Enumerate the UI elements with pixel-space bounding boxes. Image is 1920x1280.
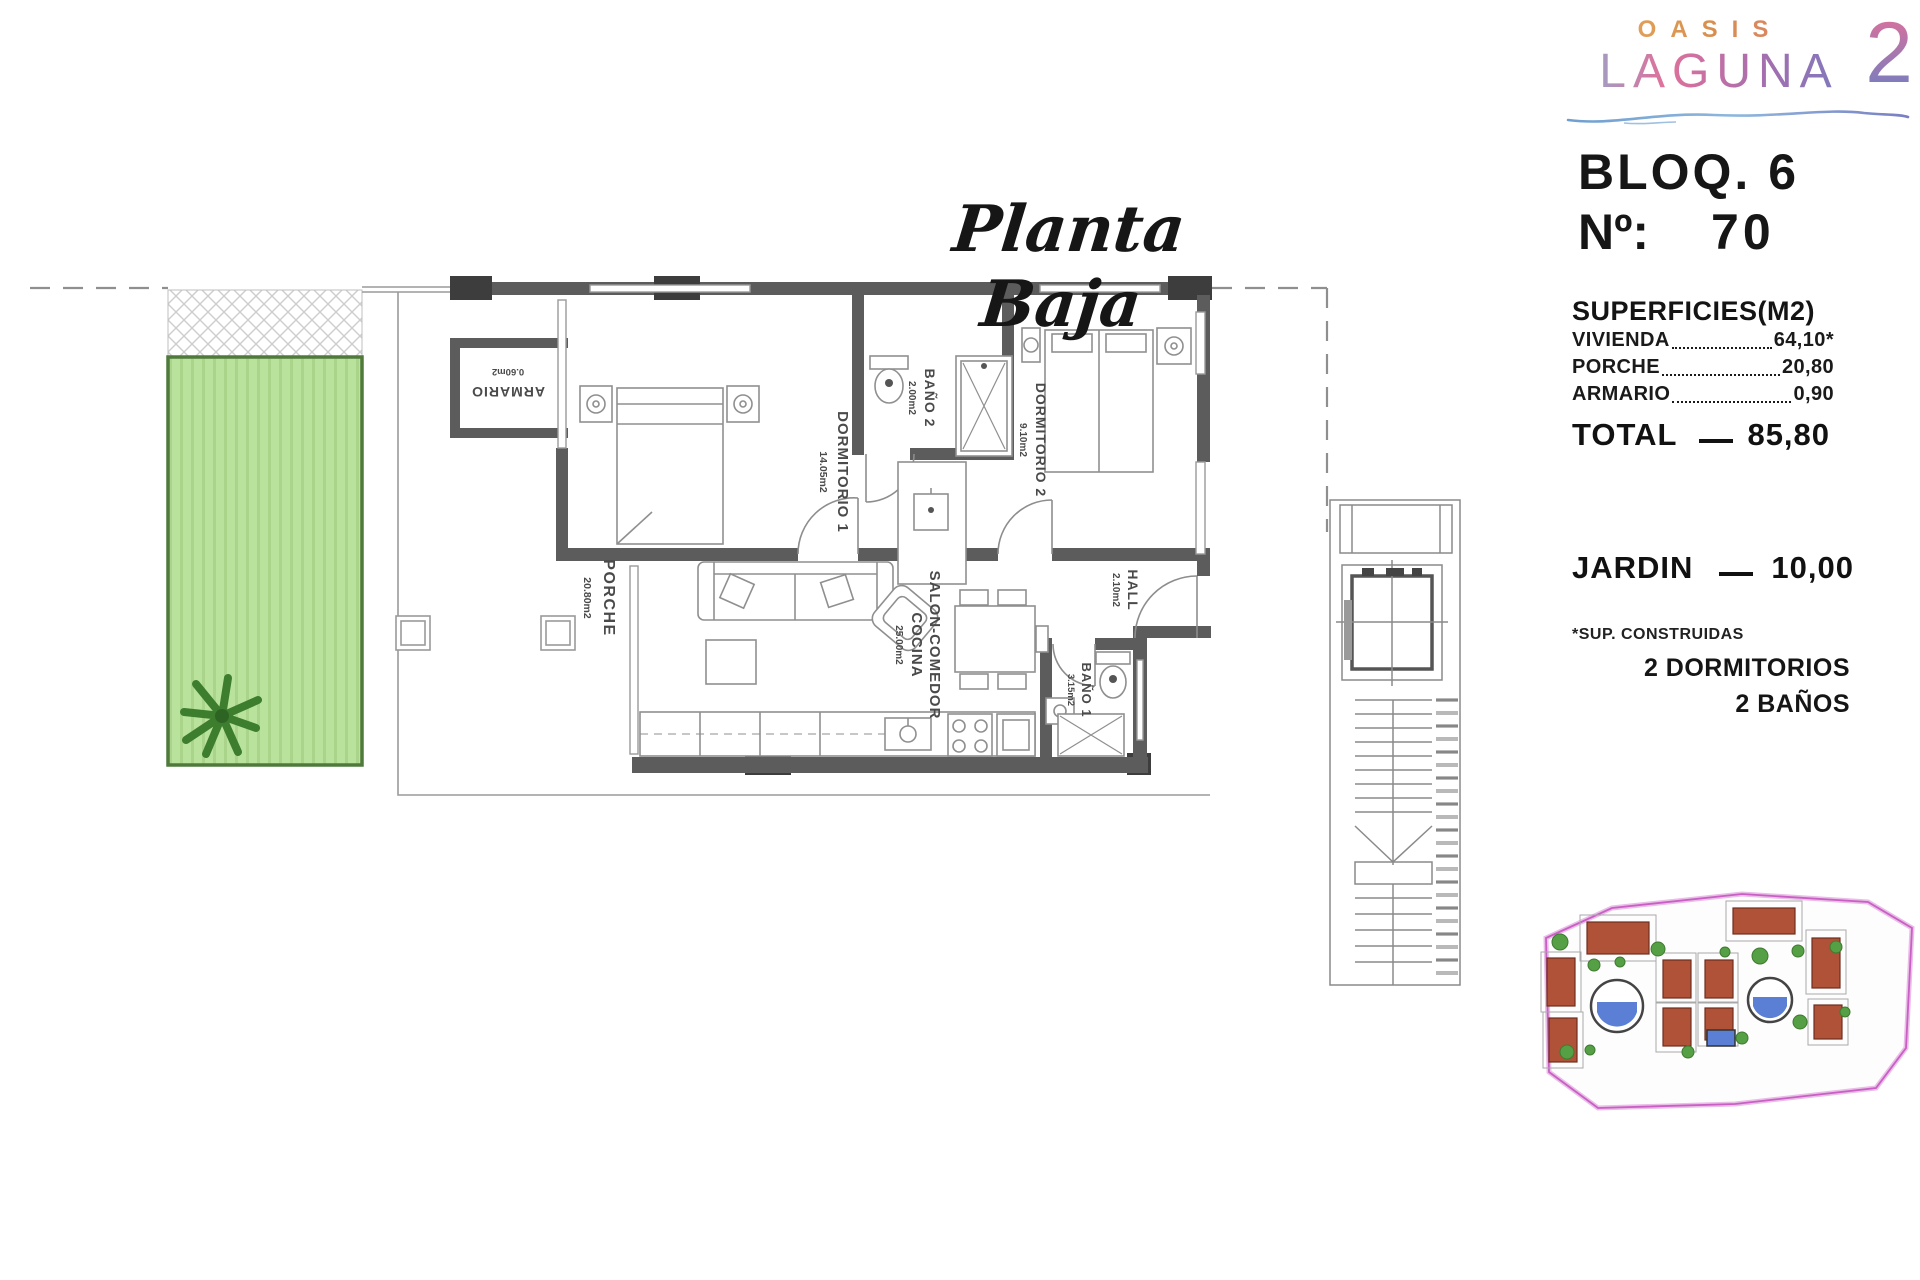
total-row: TOTAL 85,80 <box>1572 417 1834 453</box>
label-bano2: BAÑO 2 <box>922 369 939 428</box>
features-list: 2 DORMITORIOS 2 BAÑOS <box>1572 650 1850 722</box>
surface-value: 64,10* <box>1774 327 1834 354</box>
dotted-leader <box>1672 401 1791 403</box>
label-porche-area: 20.80m2 <box>581 577 593 619</box>
shower2-icon <box>956 356 1012 456</box>
block-title: BLOQ. 6 <box>1578 143 1799 201</box>
surface-value: 0,90 <box>1793 381 1834 408</box>
elevator-icon <box>1336 560 1448 686</box>
label-salon: SALON-COMEDOR <box>926 571 943 720</box>
feature-bathrooms: 2 BAÑOS <box>1572 686 1850 722</box>
label-armario: ARMARIO <box>471 384 545 400</box>
surface-label: PORCHE <box>1572 354 1660 381</box>
brand-laguna: LAGUNA <box>1560 44 1878 99</box>
garden-value: 10,00 <box>1771 550 1854 586</box>
label-dormitorio1: DORMITORIO 1 <box>834 411 851 533</box>
coffee-table-icon <box>706 640 756 684</box>
garden-label: JARDIN <box>1572 550 1693 586</box>
surface-value: 20,80 <box>1782 354 1834 381</box>
surface-row-vivienda: VIVIENDA 64,10* <box>1572 327 1834 354</box>
underscore-bar <box>1719 572 1753 576</box>
bed1-icon <box>580 386 759 544</box>
label-dormitorio1-area: 14.05m2 <box>817 451 829 493</box>
label-bano1-area: 3.15m2 <box>1065 674 1076 706</box>
surfaces-heading: SUPERFICIES(M2) <box>1572 296 1834 327</box>
page-title: Planta Baja <box>872 192 1258 342</box>
surface-row-armario: ARMARIO 0,90 <box>1572 381 1834 408</box>
page: DORMITORIO 1 14.05m2 BAÑO 2 2.00m2 DORMI… <box>0 0 1920 1280</box>
surface-label: ARMARIO <box>1572 381 1670 408</box>
total-label: TOTAL <box>1572 417 1677 453</box>
dotted-leader <box>1662 374 1780 376</box>
crosshatch-area <box>168 290 362 357</box>
toilet2-icon <box>870 356 908 403</box>
toilet1-icon <box>1096 652 1130 698</box>
sofa-icon <box>698 562 893 620</box>
unit-number-row: Nº: 70 <box>1578 203 1838 261</box>
garden-row: JARDIN 10,00 <box>1572 550 1854 586</box>
unit-number-value: 70 <box>1711 203 1775 261</box>
surface-label: VIVIENDA <box>1572 327 1670 354</box>
unit-number-label: Nº: <box>1578 203 1649 261</box>
brand-wave-icon <box>1564 104 1912 128</box>
brand-oasis: OASIS <box>1560 16 1860 44</box>
vanity-icon <box>898 462 966 584</box>
label-hall: HALL <box>1125 569 1141 610</box>
site-plan <box>1541 894 1912 1108</box>
dining-table-icon <box>955 590 1048 689</box>
label-porche: PORCHE <box>600 559 617 636</box>
label-dormitorio2: DORMITORIO 2 <box>1033 383 1049 497</box>
staircase-core <box>1330 500 1460 985</box>
brand-logo: OASIS LAGUNA 2 <box>1560 8 1915 133</box>
label-hall-area: 2.10m2 <box>1110 573 1121 607</box>
feature-bedrooms: 2 DORMITORIOS <box>1572 650 1850 686</box>
label-armario-area: 0.60m2 <box>492 366 524 377</box>
label-salon-area: 25.00m2 <box>893 625 904 665</box>
total-value: 85,80 <box>1747 417 1830 453</box>
kitchen-icon <box>640 712 1035 756</box>
label-dormitorio2-area: 9.10m2 <box>1017 423 1028 457</box>
footnote: *SUP. CONSTRUIDAS <box>1572 626 1744 644</box>
label-cocina: COCINA <box>908 612 925 677</box>
brand-number: 2 <box>1865 10 1913 96</box>
surface-row-porche: PORCHE 20,80 <box>1572 354 1834 381</box>
surfaces-panel: SUPERFICIES(M2) VIVIENDA 64,10* PORCHE 2… <box>1572 296 1834 453</box>
garden <box>168 357 362 765</box>
label-bano1: BAÑO 1 <box>1079 662 1094 717</box>
label-bano2-area: 2.00m2 <box>906 381 917 415</box>
shower1-icon <box>1058 714 1124 756</box>
underscore-bar <box>1699 439 1733 443</box>
dotted-leader <box>1672 347 1772 349</box>
furniture <box>580 328 1191 756</box>
